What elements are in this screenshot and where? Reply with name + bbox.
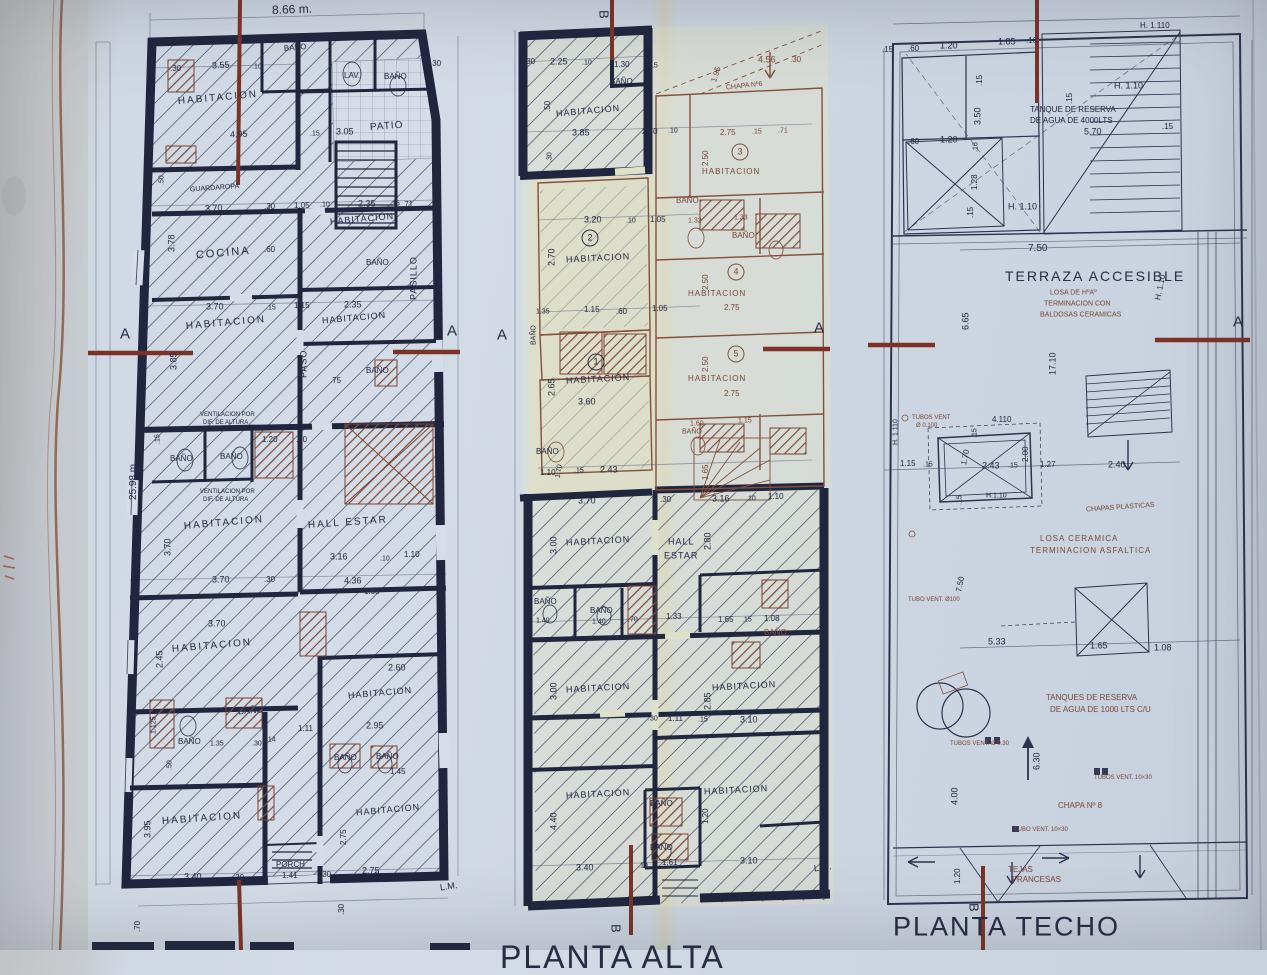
blueprint-scan: 8.66 m.BAÑOLAV.BAÑO3.55.30.10HABITACION4…: [0, 0, 1267, 950]
right-plan-linework: [884, 16, 1252, 904]
cut-title-fragments: [92, 941, 470, 950]
middle-plan-linework: [515, 24, 834, 910]
blueprint-linework: [0, 0, 1267, 950]
left-plan-linework: [96, 13, 458, 906]
